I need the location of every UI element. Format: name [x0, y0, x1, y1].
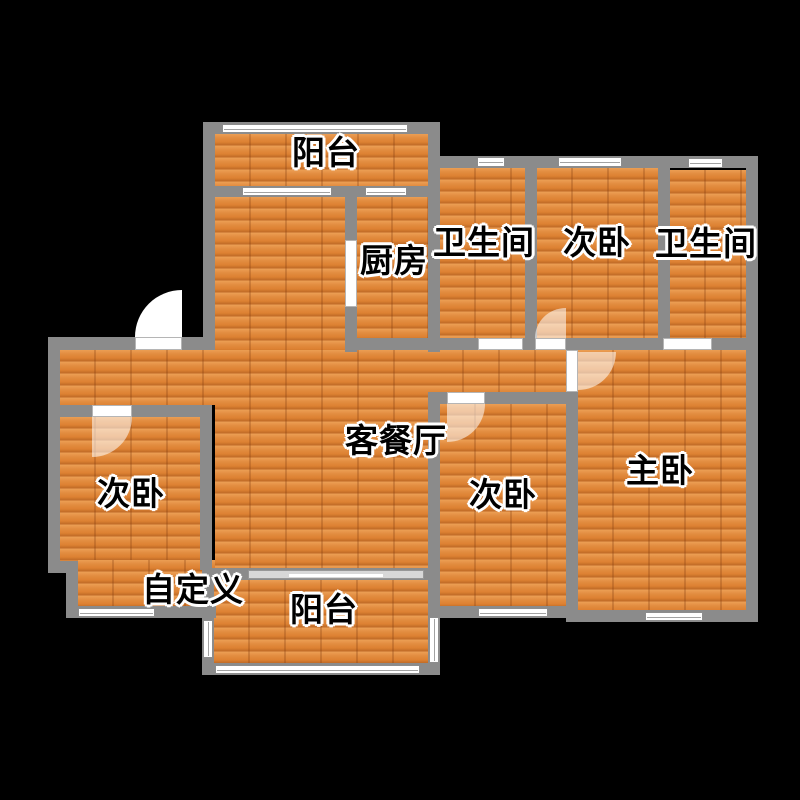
window — [558, 157, 622, 167]
room-label-custom-area: 自定义 — [142, 563, 244, 611]
room-label-bathroom-left: 卫生间 — [433, 216, 535, 264]
kitchen-sliding-door — [345, 240, 357, 307]
wall — [48, 337, 60, 573]
window — [477, 157, 505, 167]
room-label-bedroom-top: 次卧 — [563, 216, 631, 264]
room-label-living-dining: 客餐厅 — [345, 414, 447, 462]
window — [242, 187, 332, 196]
floor-living-left — [60, 350, 215, 405]
room-label-master-bedroom: 主卧 — [626, 444, 694, 492]
door-opening-bathroom-left — [478, 338, 523, 350]
wall — [203, 122, 215, 350]
door-threshold-entrance — [135, 337, 182, 350]
room-label-balcony-top: 阳台 — [292, 126, 360, 174]
window — [215, 665, 420, 674]
floor-corridor — [215, 197, 345, 350]
balcony-sliding-window — [248, 570, 424, 579]
window — [645, 612, 703, 621]
window — [203, 620, 213, 658]
door-threshold-bedroom-top — [535, 338, 566, 350]
door-threshold-bedroom-left — [92, 405, 132, 417]
wall — [746, 338, 758, 622]
room-label-balcony-bottom: 阳台 — [290, 583, 358, 631]
room-label-bathroom-right: 卫生间 — [655, 217, 757, 265]
wall — [48, 337, 135, 350]
room-label-bedroom-left: 次卧 — [97, 467, 165, 515]
window — [688, 158, 723, 168]
window — [365, 187, 407, 196]
door-opening-bathroom-right — [663, 338, 712, 350]
floor-plan: 阳台 厨房 卫生间 次卧 卫生间 客餐厅 次卧 自定义 阳台 次卧 主卧 — [0, 0, 800, 800]
floor-hallway — [428, 350, 566, 392]
wall — [200, 405, 212, 570]
window — [478, 608, 548, 617]
room-label-kitchen: 厨房 — [360, 234, 428, 282]
window — [429, 617, 439, 663]
door-threshold-master-bedroom — [566, 350, 578, 392]
door-threshold-bedroom-middle — [447, 392, 485, 404]
room-label-bedroom-middle: 次卧 — [469, 468, 537, 516]
door-swing-entrance — [135, 290, 182, 337]
wall — [182, 337, 215, 350]
